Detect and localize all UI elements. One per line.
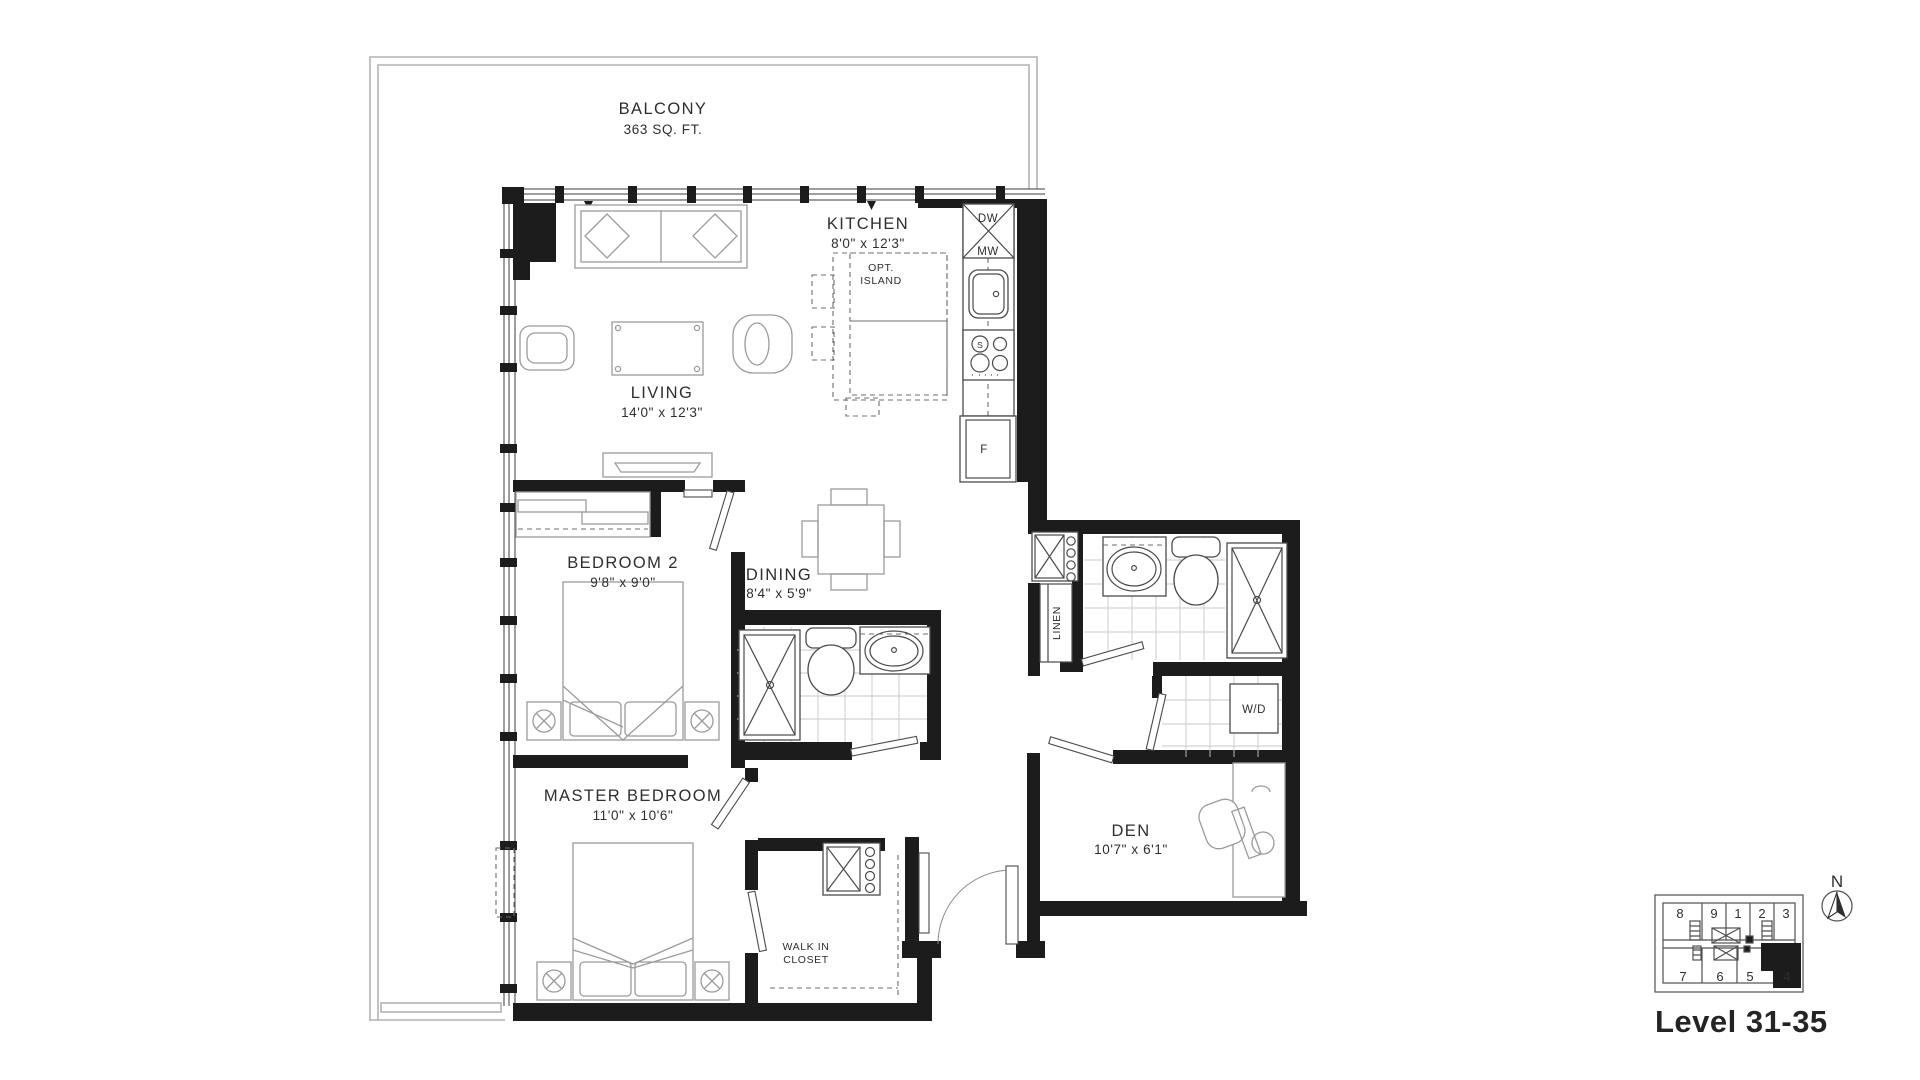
pantry-unit [1032,532,1078,581]
toilet-tank [1172,537,1220,557]
coffee-table [612,322,703,375]
level-label: Level 31-35 [1655,1004,1828,1039]
north-needle-outline [1828,892,1837,918]
lamp-icon [701,970,723,992]
island-top [850,253,947,321]
laundry-door [1146,693,1166,750]
bed [573,843,693,1000]
wall-master-wic-b [745,840,758,890]
master-dims: 11'0" x 10'6" [593,808,674,823]
wall-kitchen-right [1017,199,1047,530]
armchair [733,315,792,373]
north-arrow: N [1822,872,1852,921]
dining-chair [884,521,900,557]
kitchen: DW MW S F OPT. ISLAND KITCHEN 8'0" x 12'… [812,204,1016,482]
wic-door [748,891,766,951]
unit-number-highlighted: 4 [1783,969,1790,984]
island-stool [846,398,879,416]
linen-label: LINEN [1051,606,1063,640]
island-label-1: OPT. [868,262,894,274]
wall-bed2-master [513,755,688,768]
wic-pocket-door [919,853,929,933]
wall-den-top [1113,750,1300,764]
wall-den-bottom [1027,901,1307,916]
wall-living-bed2-b [713,480,731,492]
master-label: MASTER BEDROOM [544,787,722,805]
toilet-bowl [1174,555,1218,605]
island-stool [812,275,834,308]
toilet-bowl [808,645,854,695]
unit-number: 7 [1679,969,1686,984]
den-door [1049,737,1114,763]
stove-label: S [977,340,983,350]
bedroom2-door [710,491,734,550]
laundry-label: W/D [1242,704,1266,716]
living-room: LIVING 14'0" x 12'3" [520,205,792,477]
den: DEN 10'7" x 6'1" [1094,763,1285,897]
dining-dims: 8'4" x 5'9" [746,586,812,601]
north-label: N [1831,872,1843,891]
island-label-2: ISLAND [860,275,902,287]
dishwasher-label: DW [978,213,998,225]
bedroom2-dims: 9'8" x 9'0" [590,575,656,590]
microwave-label: MW [977,246,998,258]
lamp-icon [543,970,565,992]
kitchen-dims: 8'0" x 12'3" [831,236,905,251]
pantry-box [1032,532,1078,581]
balcony-divider [381,1003,501,1012]
built-in-shelf [823,843,880,895]
fridge-label: F [980,444,988,456]
dining-label: DINING [746,566,812,584]
kitchen-label: KITCHEN [827,215,909,233]
floor-plan-drawing: BALCONY 363 SQ. FT. [0,0,1920,1080]
balcony-label: BALCONY [619,100,708,118]
dining-chair [802,521,818,557]
den-label: DEN [1111,822,1150,840]
balcony-area-label: 363 SQ. FT. [624,122,703,137]
den-dims: 10'7" x 6'1" [1094,842,1168,857]
key-plan: 8 9 1 2 3 7 6 5 4 N Level 31-35 [1655,872,1852,1039]
entry-door-leaf [1006,866,1018,944]
wall-den-left [1027,753,1040,916]
unit-number: 2 [1758,906,1765,921]
bathroom-ensuite [1084,536,1287,660]
unit-number: 6 [1716,969,1723,984]
island-stool [812,327,834,360]
wall-entry-corner [1027,916,1040,958]
wall-bottom-step [917,941,932,1021]
door-marker-icon [867,201,876,210]
wall-closet-stub [650,487,661,537]
laundry-closet: W/D [1162,676,1282,757]
wall-bath2-bottom-left [735,742,852,760]
wic-label-1: WALK IN [783,941,830,953]
balcony-door-dashed [496,848,514,917]
wall-bottom [513,1003,932,1021]
optional-island: OPT. ISLAND [812,253,947,416]
wic-label-2: CLOSET [783,954,829,966]
living-dims: 14'0" x 12'3" [621,405,703,420]
island-bottom [850,321,947,395]
top-window-band [505,189,1045,200]
kitchen-sink [969,270,1008,318]
wall-bath2-top [735,610,935,625]
dining-chair [831,489,867,505]
bath-ensuite-door [1081,642,1143,666]
wall-bath-bottom [1153,662,1300,676]
lamp-icon [691,710,713,732]
north-needle-fill [1837,892,1846,918]
walk-in-closet: WALK IN CLOSET [770,843,898,995]
bed [563,582,683,740]
linen-closet: LINEN [1040,584,1072,662]
corner-column [502,187,524,204]
bathroom-main [737,627,930,742]
bath-main-door [851,736,918,756]
closet [516,492,650,537]
living-label: LIVING [631,384,694,402]
floor-plan-page: BALCONY 363 SQ. FT. [0,0,1920,1080]
unit-number: 9 [1710,906,1717,921]
wall-master-wic-a [745,768,758,782]
wall-bed2-hall-a [731,480,745,492]
keyplan-highlighted-unit [1761,943,1801,988]
master-bedroom: MASTER BEDROOM 11'0" x 10'6" [537,787,729,1000]
wall-foyer-wic [905,837,919,958]
fridge [960,416,1016,482]
bedroom2-door-head [684,490,712,497]
shear-wall [513,203,556,280]
entry-door [938,866,1018,944]
cooktop [963,330,1014,380]
wall-linen-left [1028,583,1040,676]
dining: DINING 8'4" x 5'9" [746,489,900,601]
bedroom2-label: BEDROOM 2 [567,554,679,572]
bedroom-2: BEDROOM 2 9'8" x 9'0" [516,492,719,740]
entry-door-arc [938,870,1012,944]
unit-number: 1 [1734,906,1741,921]
lamp-icon [533,710,555,732]
wall-master-wic-c [745,953,758,1003]
dining-table [818,505,884,574]
unit-number: 5 [1746,969,1753,984]
tv-console [603,453,712,477]
unit-number: 3 [1782,906,1789,921]
dining-chair [831,574,867,590]
unit-number: 8 [1676,906,1683,921]
